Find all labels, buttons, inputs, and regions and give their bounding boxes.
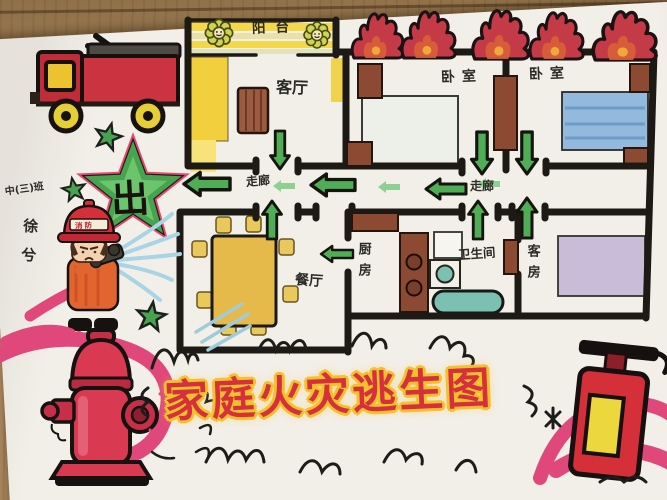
label-hallway-right: 走廊 <box>470 180 494 193</box>
escape-arrow-left-icon <box>311 174 355 196</box>
escape-arrow-down-icon <box>271 131 290 169</box>
sunflower-icon <box>304 22 330 48</box>
label-dining-room: 餐厅 <box>295 273 324 290</box>
label-hallway-left: 走廊 <box>245 174 270 189</box>
label-kitchen: 厨房 <box>356 242 370 284</box>
escape-arrow-left-icon <box>184 173 230 196</box>
small-star-icon <box>135 300 167 331</box>
label-bedroom-left: 卧室 <box>441 69 483 85</box>
escape-arrow-left-icon <box>426 179 466 199</box>
escape-arrow-up-icon <box>263 201 282 239</box>
escape-arrow-up-icon <box>469 201 488 239</box>
label-living-room: 客厅 <box>276 79 309 97</box>
small-star-icon <box>61 176 87 201</box>
escape-arrow-down-icon <box>517 132 538 174</box>
guest-room-bed <box>558 236 645 296</box>
water-spray <box>114 214 180 300</box>
fire-truck <box>30 36 180 131</box>
flame-icon <box>593 12 656 60</box>
exit-sign-character: 出 <box>110 167 151 224</box>
helmet-text: 消防 <box>75 220 95 232</box>
flame-icon <box>402 12 455 58</box>
label-bathroom: 卫生间 <box>458 246 496 262</box>
sofa <box>238 88 268 133</box>
hand-drawn-fire-escape-poster: 阳台 客厅 卧室 卧室 走廊 走廊 餐厅 厨房 卫生间 客房 出 中(三)班 徐… <box>0 0 667 500</box>
label-bedroom-right: 卧室 <box>529 66 571 82</box>
flames-row <box>352 11 656 60</box>
small-arrow-icon <box>273 180 295 192</box>
escape-arrow-down-icon <box>472 132 493 174</box>
bedroom-right-bed <box>562 64 650 168</box>
student-name: 徐兮 <box>18 218 38 277</box>
label-balcony: 阳台 <box>252 20 299 36</box>
sunflower-icon <box>205 19 232 46</box>
small-arrow-icon <box>378 181 400 193</box>
flame-icon <box>530 13 583 59</box>
small-star-icon <box>92 120 124 151</box>
flame-icon <box>352 14 403 58</box>
label-guest-room: 客房 <box>525 244 539 286</box>
flame-icon <box>473 11 528 59</box>
escape-arrow-left-icon <box>321 246 353 262</box>
fire-extinguisher <box>540 339 667 482</box>
